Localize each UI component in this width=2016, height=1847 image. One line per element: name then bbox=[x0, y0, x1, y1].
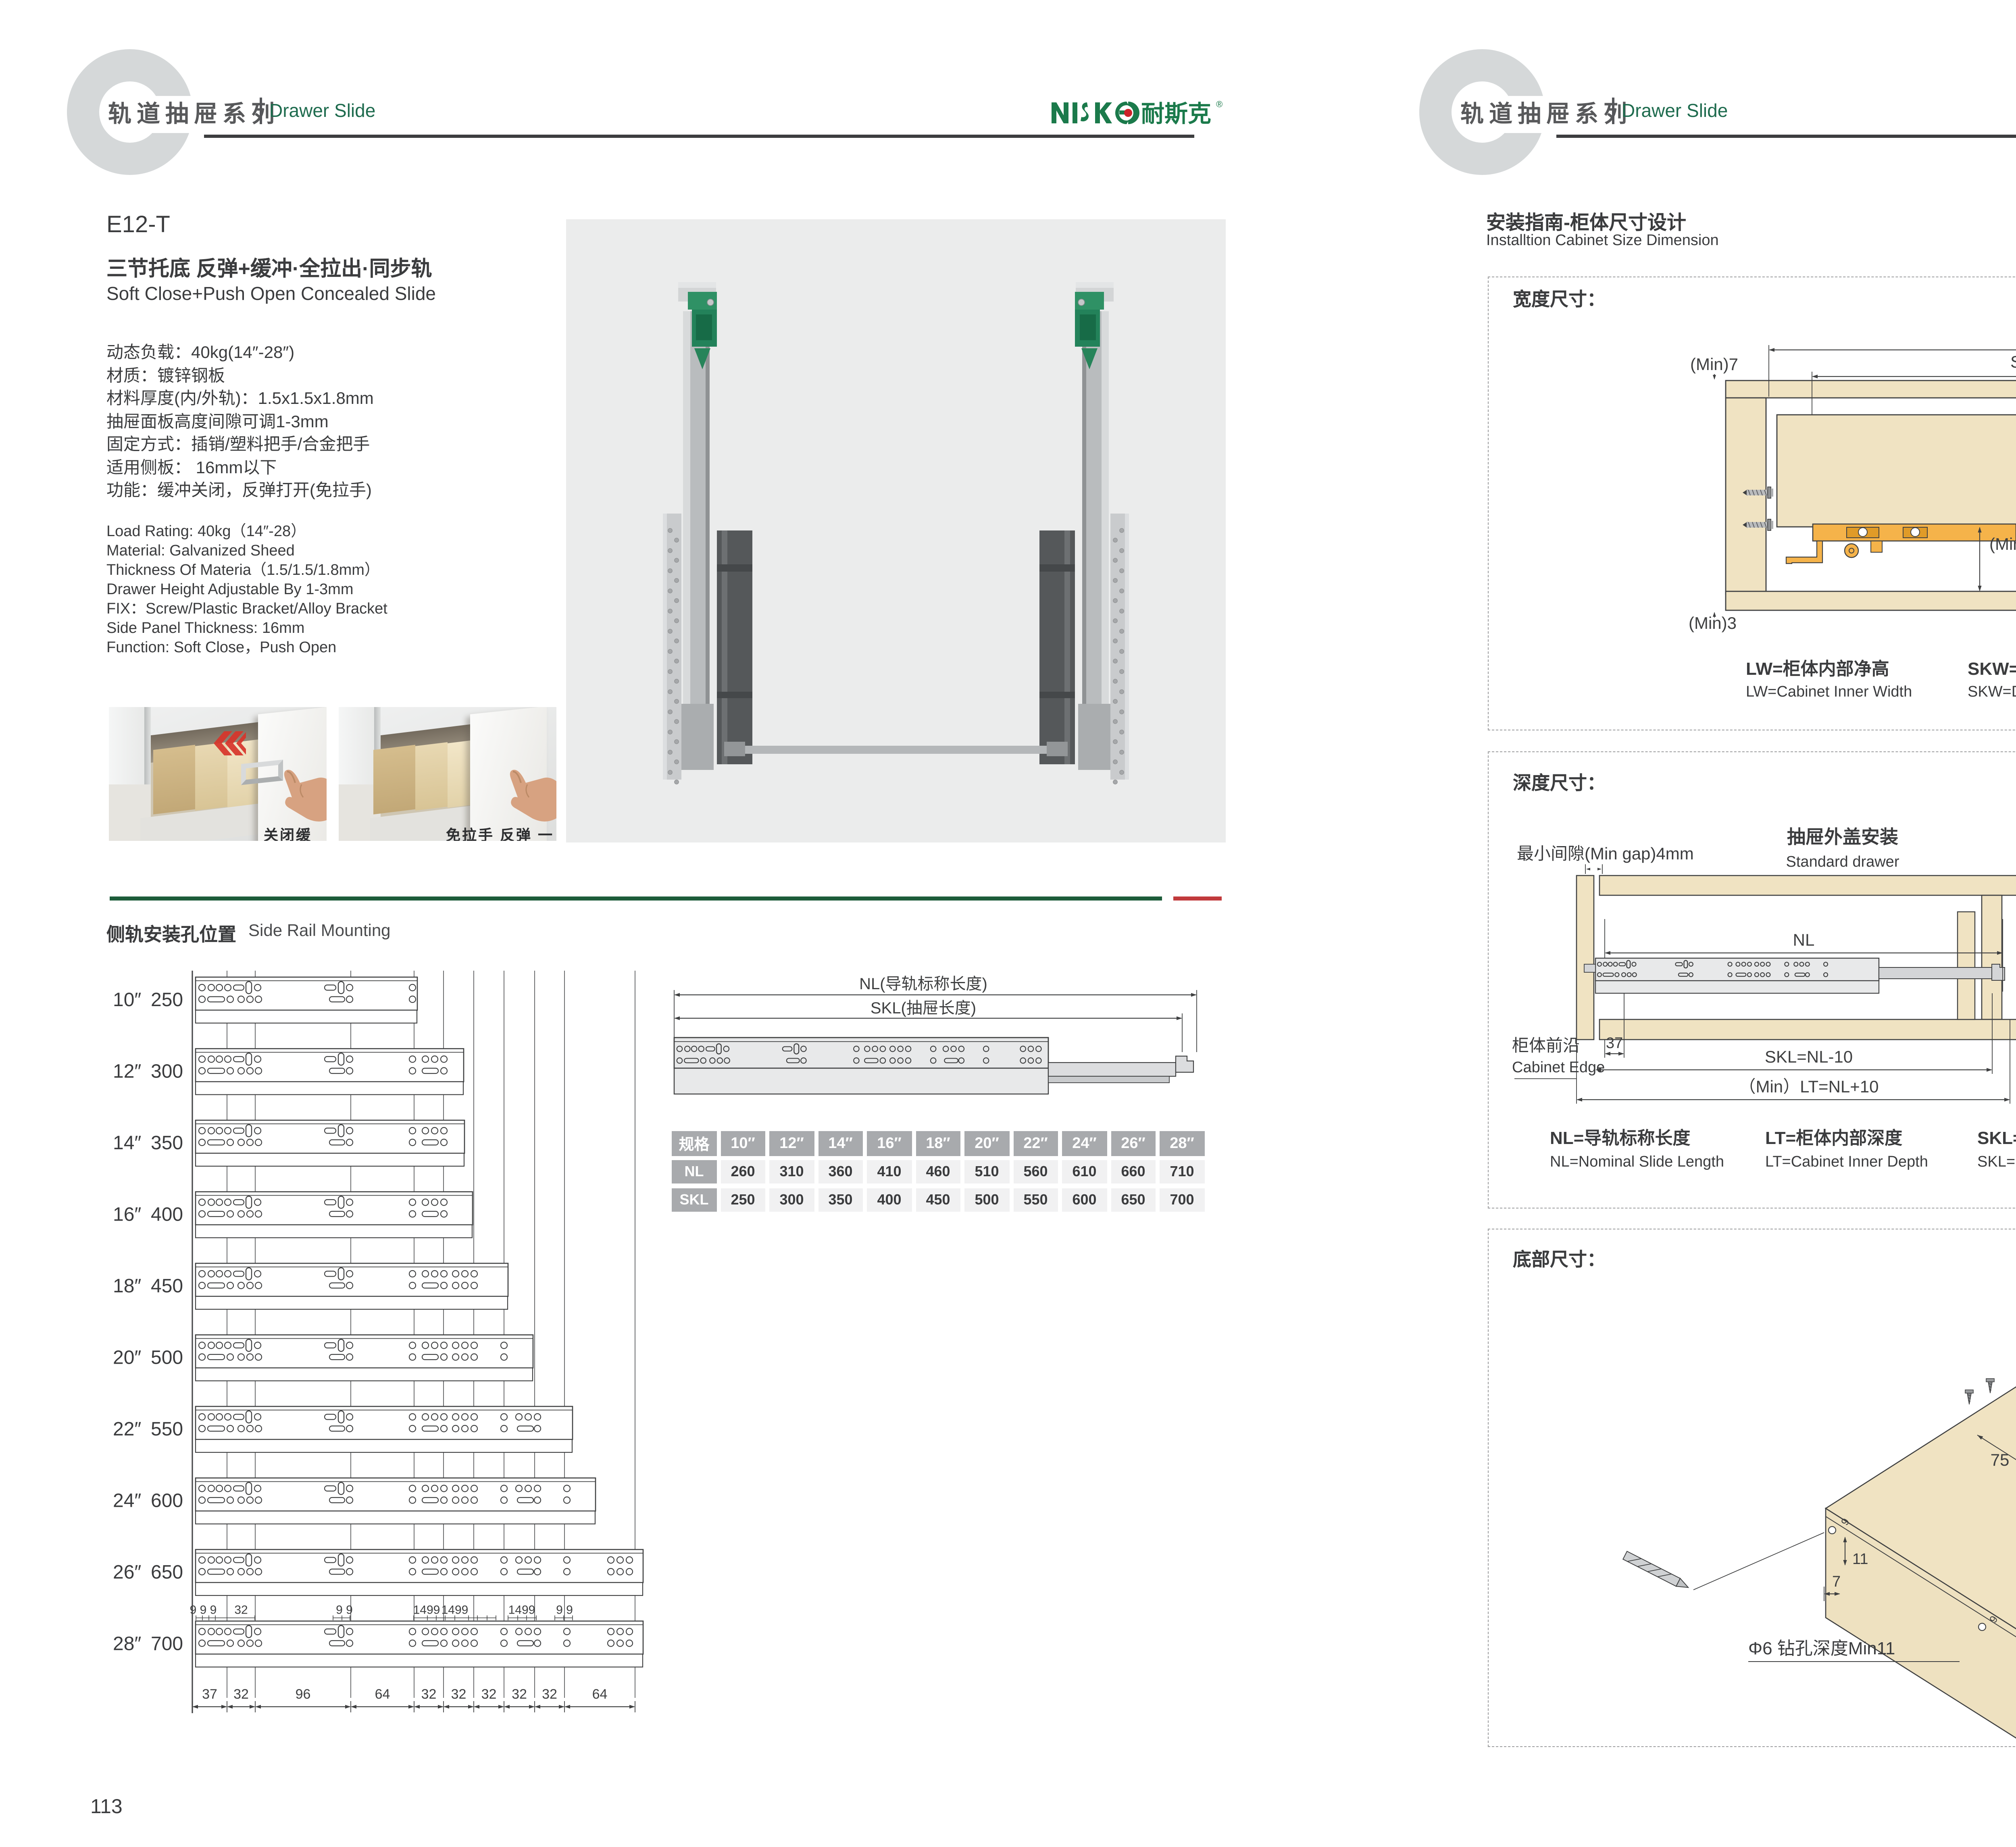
svg-text:SKW=LW-42: SKW=LW-42 bbox=[2010, 352, 2016, 371]
svg-text:Cabinet Edge: Cabinet Edge bbox=[1512, 1059, 1605, 1076]
svg-text:SKW=抽屉宽度: SKW=抽屉宽度 bbox=[1968, 659, 2016, 679]
svg-text:（Min）LT=NL+10: （Min）LT=NL+10 bbox=[1739, 1077, 1879, 1096]
svg-text:抽屉外盖安装: 抽屉外盖安装 bbox=[1787, 826, 1898, 847]
svg-text:SKL=Drawer Length: SKL=Drawer Length bbox=[1977, 1153, 2016, 1170]
svg-text:LW=柜体内部净高: LW=柜体内部净高 bbox=[1746, 659, 1889, 679]
svg-text:NL=导轨标称长度: NL=导轨标称长度 bbox=[1550, 1128, 1690, 1148]
svg-text:LT=Cabinet Inner Depth: LT=Cabinet Inner Depth bbox=[1765, 1153, 1928, 1170]
svg-text:7: 7 bbox=[1832, 1573, 1841, 1590]
svg-text:SKL=抽屉长度: SKL=抽屉长度 bbox=[1977, 1128, 2016, 1148]
svg-text:Φ6 钻孔深度Min11: Φ6 钻孔深度Min11 bbox=[1748, 1639, 1895, 1658]
svg-text:SKL=NL-10: SKL=NL-10 bbox=[1765, 1047, 1853, 1066]
svg-text:(Min)3: (Min)3 bbox=[1689, 614, 1737, 632]
svg-text:LW=Cabinet Inner Width: LW=Cabinet Inner Width bbox=[1746, 683, 1912, 700]
svg-text:(Min)27.5: (Min)27.5 bbox=[1989, 535, 2016, 553]
svg-text:LT=柜体内部深度: LT=柜体内部深度 bbox=[1765, 1128, 1902, 1148]
svg-text:最小间隙(Min gap)4mm: 最小间隙(Min gap)4mm bbox=[1517, 844, 1694, 863]
svg-text:Standard drawer: Standard drawer bbox=[1786, 853, 1899, 870]
svg-text:NL: NL bbox=[1793, 930, 1815, 949]
svg-text:(Min)7: (Min)7 bbox=[1690, 355, 1738, 374]
svg-text:37: 37 bbox=[1606, 1035, 1623, 1052]
svg-text:NL=Nominal Slide Length: NL=Nominal Slide Length bbox=[1550, 1153, 1724, 1170]
svg-text:SKW=Drawer Width: SKW=Drawer Width bbox=[1968, 683, 2016, 700]
svg-text:柜体前沿: 柜体前沿 bbox=[1512, 1036, 1580, 1055]
svg-text:11: 11 bbox=[1852, 1551, 1868, 1568]
